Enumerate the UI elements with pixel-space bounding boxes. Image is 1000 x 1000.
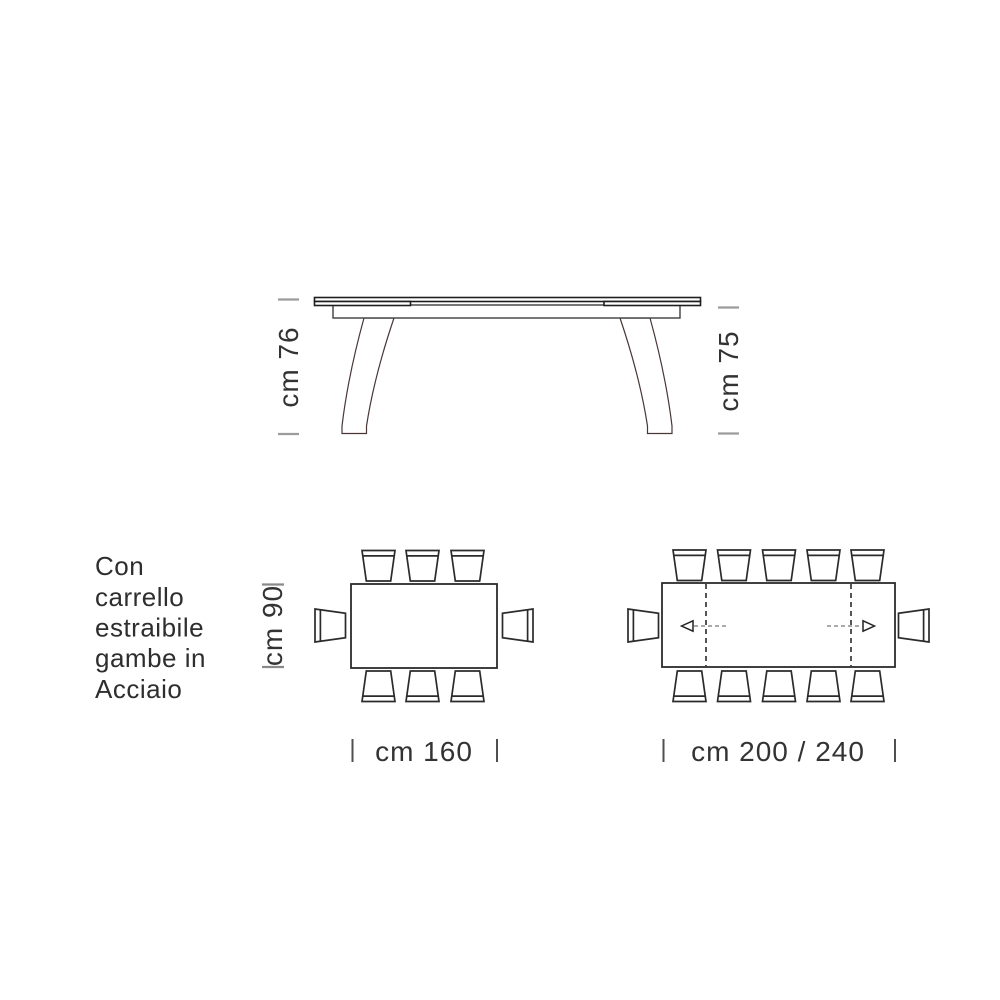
chair-icon (362, 551, 395, 582)
diagram-canvas: cm 76 cm 75 Con carrello estraibile gamb… (0, 0, 1000, 1000)
extension-leaf-left-icon (315, 302, 411, 306)
width-label-large: cm 200 / 240 (691, 736, 865, 767)
chair-icon (807, 671, 840, 702)
chair-icon (673, 550, 706, 581)
chair-icon (503, 609, 534, 642)
chair-icon (718, 671, 751, 702)
plan-view-small: cm 90 cm 160 (257, 551, 533, 768)
chair-icon (718, 550, 751, 581)
chair-icon (406, 551, 439, 582)
height-label-right: cm 75 (713, 330, 744, 411)
table-leg-left (342, 318, 394, 434)
table-apron (333, 305, 680, 318)
chair-icon (406, 671, 439, 702)
chair-icon (362, 671, 395, 702)
chair-icon (673, 671, 706, 702)
furniture-spec-diagram: cm 76 cm 75 Con carrello estraibile gamb… (0, 0, 1000, 1000)
description-line: Con (95, 551, 144, 581)
product-description: Con carrello estraibile gambe in Acciaio (95, 551, 206, 704)
table-leg-right (620, 318, 672, 434)
description-line: gambe in (95, 643, 206, 673)
extension-leaf-right-icon (604, 302, 701, 306)
chair-icon (851, 550, 884, 581)
chair-icon (451, 551, 484, 582)
description-line: estraibile (95, 613, 204, 643)
plan-view-large: cm 200 / 240 (628, 550, 929, 767)
chair-icon (315, 609, 346, 642)
chair-icon (899, 609, 930, 642)
chair-icon (763, 550, 796, 581)
side-view-diagram: cm 76 cm 75 (273, 298, 744, 435)
chair-icon (628, 609, 659, 642)
tabletop-outline-large (662, 583, 895, 667)
chair-icon (807, 550, 840, 581)
chair-icon (851, 671, 884, 702)
width-label-small: cm 160 (375, 736, 473, 767)
description-line: carrello (95, 582, 184, 612)
description-line: Acciaio (95, 674, 182, 704)
chair-icon (763, 671, 796, 702)
chair-icon (451, 671, 484, 702)
tabletop-outline-small (351, 584, 497, 668)
depth-label: cm 90 (257, 585, 288, 666)
height-label-left: cm 76 (273, 326, 304, 407)
